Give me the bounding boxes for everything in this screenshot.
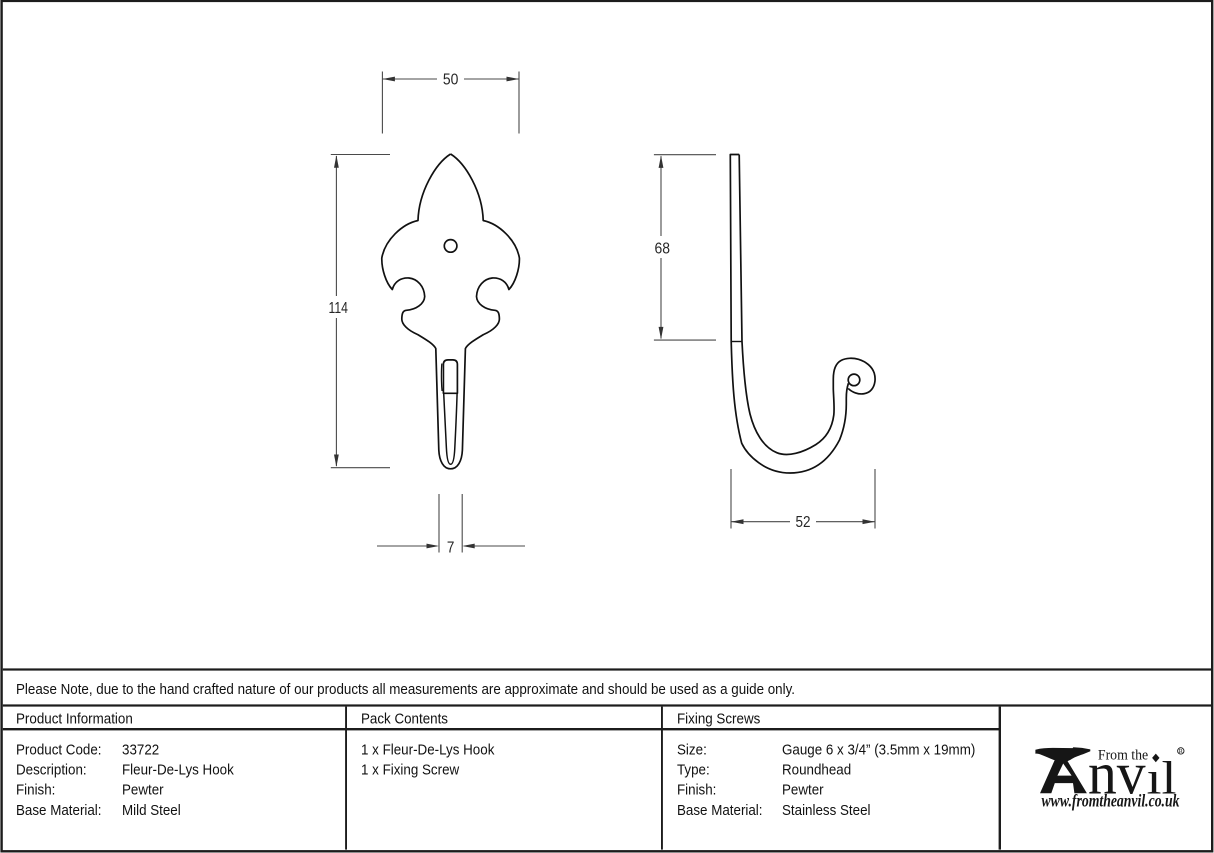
svg-text:Roundhead: Roundhead: [782, 762, 851, 779]
svg-text:Finish:: Finish:: [16, 782, 55, 799]
svg-text:Base Material:: Base Material:: [16, 802, 102, 819]
svg-text:Mild Steel: Mild Steel: [122, 802, 181, 819]
svg-text:Please Note, due to the hand c: Please Note, due to the hand crafted nat…: [16, 681, 795, 698]
svg-text:Fleur-De-Lys Hook: Fleur-De-Lys Hook: [122, 762, 234, 779]
svg-text:50: 50: [443, 72, 459, 89]
svg-text:From the: From the: [1098, 748, 1148, 764]
svg-text:68: 68: [655, 241, 671, 258]
svg-text:Pewter: Pewter: [122, 782, 164, 799]
svg-text:Base Material:: Base Material:: [677, 802, 763, 819]
svg-text:Gauge 6 x 3/4” (3.5mm x 19mm): Gauge 6 x 3/4” (3.5mm x 19mm): [782, 742, 975, 759]
svg-text:52: 52: [796, 514, 811, 531]
svg-text:Stainless Steel: Stainless Steel: [782, 802, 871, 819]
svg-text:Product Information: Product Information: [16, 710, 133, 727]
svg-text:Type:: Type:: [677, 762, 710, 779]
svg-text:Product Code:: Product Code:: [16, 742, 102, 759]
svg-text:7: 7: [447, 540, 455, 557]
svg-text:33722: 33722: [122, 742, 159, 759]
svg-text:Description:: Description:: [16, 762, 87, 779]
svg-text:Pewter: Pewter: [782, 782, 824, 799]
svg-text:Size:: Size:: [677, 742, 707, 759]
svg-text:Pack Contents: Pack Contents: [361, 710, 448, 727]
svg-text:1 x Fixing Screw: 1 x Fixing Screw: [361, 762, 459, 779]
svg-text:Finish:: Finish:: [677, 782, 716, 799]
svg-text:1 x Fleur-De-Lys Hook: 1 x Fleur-De-Lys Hook: [361, 742, 495, 759]
svg-text:www.fromtheanvil.co.uk: www.fromtheanvil.co.uk: [1042, 791, 1180, 811]
svg-text:114: 114: [328, 300, 348, 317]
svg-text:Fixing Screws: Fixing Screws: [677, 710, 760, 727]
